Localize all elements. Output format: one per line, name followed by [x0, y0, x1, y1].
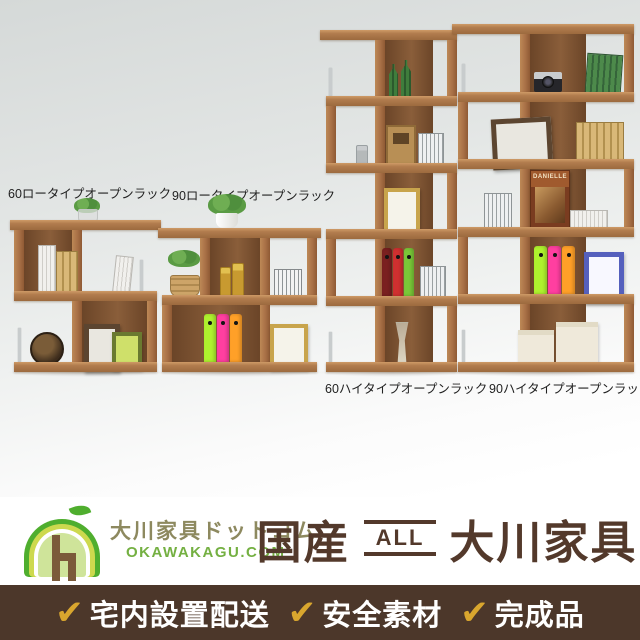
rack-divider: [520, 169, 530, 227]
headline-left: 国産: [257, 506, 351, 571]
rack-side-panel: [162, 305, 172, 362]
decor-magazine-cover: [535, 187, 565, 223]
feature-label: 宅内設置配送: [90, 592, 270, 634]
rack-low90: [162, 228, 317, 372]
rack-divider: [520, 34, 530, 92]
decor-cd-stack: [484, 193, 512, 229]
rack-side-panel: [14, 230, 24, 291]
rack-side-panel: [326, 239, 336, 296]
headline-all-badge: ALL: [364, 520, 437, 556]
logo-trunk: [68, 553, 76, 581]
rack-board: [162, 295, 317, 305]
decor-books: [585, 53, 624, 95]
rack-board: [326, 296, 457, 306]
label-high60: 60ハイタイプオープンラック: [325, 378, 487, 397]
rack-board: [326, 96, 457, 106]
rack-back-panel: [172, 305, 260, 362]
rack-side-panel: [624, 34, 634, 92]
decor-bookend: [18, 328, 21, 362]
rack-side-panel: [307, 238, 317, 295]
rack-side-panel: [624, 304, 634, 362]
rack-high90: DANIELLE: [458, 24, 634, 372]
decor-binder-green: [404, 248, 414, 296]
decor-binder-red: [393, 248, 403, 296]
decor-cd-stack: [418, 133, 444, 165]
rack-board: [320, 30, 457, 40]
rack-board: [14, 291, 157, 301]
rack-board: [10, 220, 161, 230]
decor-books: [38, 245, 56, 293]
decor-binder-lime: [534, 246, 547, 294]
feature-label: 安全素材: [322, 592, 442, 634]
rack-side-panel: [326, 106, 336, 163]
rack-board: [458, 159, 634, 169]
decor-binder-orange: [230, 314, 242, 362]
decor-bookend: [140, 260, 143, 291]
rack-side-panel: [624, 169, 634, 227]
rack-divider: [260, 305, 270, 362]
rack-board: [158, 228, 321, 238]
decor-binder-darkred: [382, 248, 392, 296]
decor-binder-pink: [217, 314, 229, 362]
decor-cd-box: [274, 269, 302, 297]
rack-divider: [260, 238, 270, 295]
decor-binder-orange: [562, 246, 575, 294]
decor-magazine: DANIELLE: [530, 170, 570, 229]
rack-side-panel: [447, 306, 457, 362]
rack-board: [326, 362, 457, 372]
feature-label: 完成品: [495, 592, 585, 634]
rack-side-panel: [458, 237, 468, 294]
rack-side-panel: [147, 301, 157, 362]
brand-logo-tree-icon: [24, 505, 102, 579]
decor-binder-pink: [548, 246, 561, 294]
decor-wood-box: [386, 125, 416, 167]
rack-board: [458, 92, 634, 102]
decor-cd-stack: [420, 266, 446, 298]
rack-divider: [375, 40, 385, 96]
decor-bookend: [329, 68, 332, 96]
label-high90: 90ハイタイプオープンラック: [489, 378, 640, 397]
decor-camera: [534, 72, 562, 92]
rack-board: [14, 362, 157, 372]
decor-plant: [208, 194, 246, 215]
headline: 国産 ALL 大川家具: [258, 503, 636, 573]
rack-side-panel: [447, 40, 457, 96]
rack-back-panel: [385, 306, 433, 362]
rack-board: [326, 229, 457, 239]
decor-perfume-bottle: [232, 263, 244, 297]
rack-high60: [326, 30, 457, 372]
decor-plant-pot: [216, 213, 238, 228]
rack-board: [458, 227, 634, 237]
feature-bar: ✔ 宅内設置配送 ✔ 安全素材 ✔ 完成品: [0, 585, 640, 640]
rack-side-panel: [458, 102, 468, 159]
logo-leaf-icon: [69, 502, 92, 519]
rack-divider: [375, 106, 385, 163]
decor-magazines: [112, 255, 134, 294]
feature-delivery: ✔ 宅内設置配送: [55, 592, 270, 634]
decor-perfume-bottle: [356, 145, 368, 165]
rack-board: [452, 24, 634, 34]
decor-bookend: [462, 64, 465, 92]
check-icon: ✔: [288, 596, 317, 630]
decor-binder-lime: [204, 314, 216, 362]
rack-low60: [14, 220, 157, 372]
decor-books: [576, 122, 624, 161]
decor-camera-lens: [542, 76, 554, 88]
decor-books: [56, 251, 78, 293]
decor-globe-clock: [30, 332, 64, 366]
rack-side-panel: [447, 173, 457, 229]
rack-divider: [375, 306, 385, 362]
rack-divider: [200, 238, 210, 295]
decor-perfume-bottle: [220, 267, 231, 297]
check-icon: ✔: [460, 596, 489, 630]
decor-bookend: [329, 332, 332, 362]
label-low90: 90ロータイプオープンラック: [172, 185, 335, 204]
decor-bookend: [462, 330, 465, 362]
rack-board: [162, 362, 317, 372]
decor-storage-box: [556, 322, 598, 367]
headline-right: 大川家具: [449, 506, 637, 571]
decor-magazine-title: DANIELLE: [531, 174, 569, 180]
rack-board: [458, 294, 634, 304]
brand-row: 大川家具ドットコム OKAWAKAGU.COM 国産 ALL 大川家具: [0, 497, 640, 585]
product-banner: 60ロータイプオープンラック 90ロータイプオープンラック 60ハイタイプオープ…: [0, 0, 640, 640]
feature-assembled: ✔ 完成品: [460, 592, 585, 634]
decor-basket: [170, 275, 200, 297]
rack-divider: [520, 237, 530, 294]
feature-safe-material: ✔ 安全素材: [288, 592, 443, 634]
rack-divider: [72, 301, 82, 362]
rack-board: [458, 362, 634, 372]
decor-plant: [168, 250, 200, 267]
check-icon: ✔: [55, 596, 84, 630]
rack-board: [326, 163, 457, 173]
